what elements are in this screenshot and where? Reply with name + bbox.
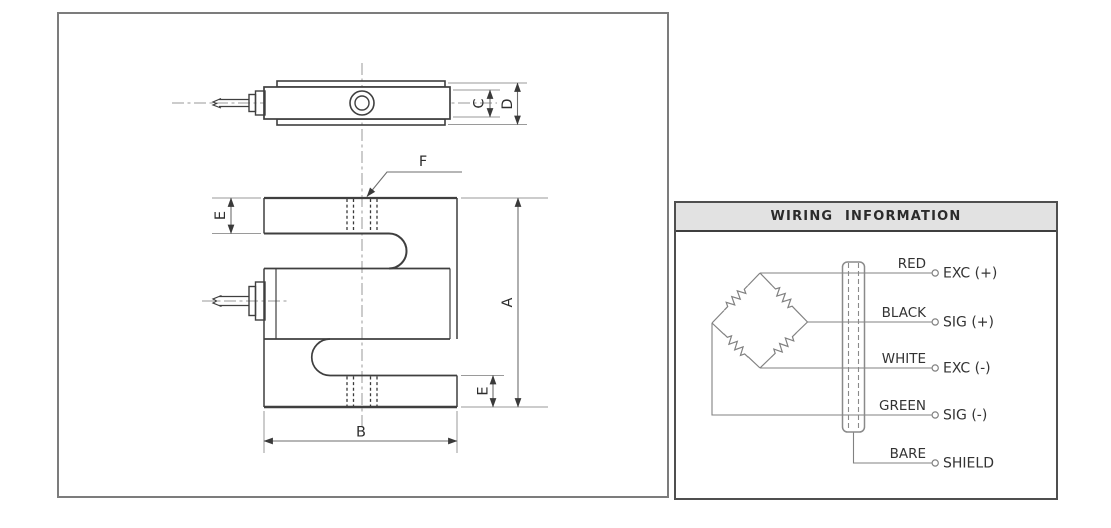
wiring-title: WIRING INFORMATION xyxy=(771,209,962,224)
dimension-drawing-panel xyxy=(57,12,669,498)
wiring-header: WIRING INFORMATION xyxy=(676,203,1056,232)
wiring-information-panel: WIRING INFORMATION xyxy=(674,201,1058,500)
screenshot-canvas: WIRING INFORMATION xyxy=(0,0,1111,528)
